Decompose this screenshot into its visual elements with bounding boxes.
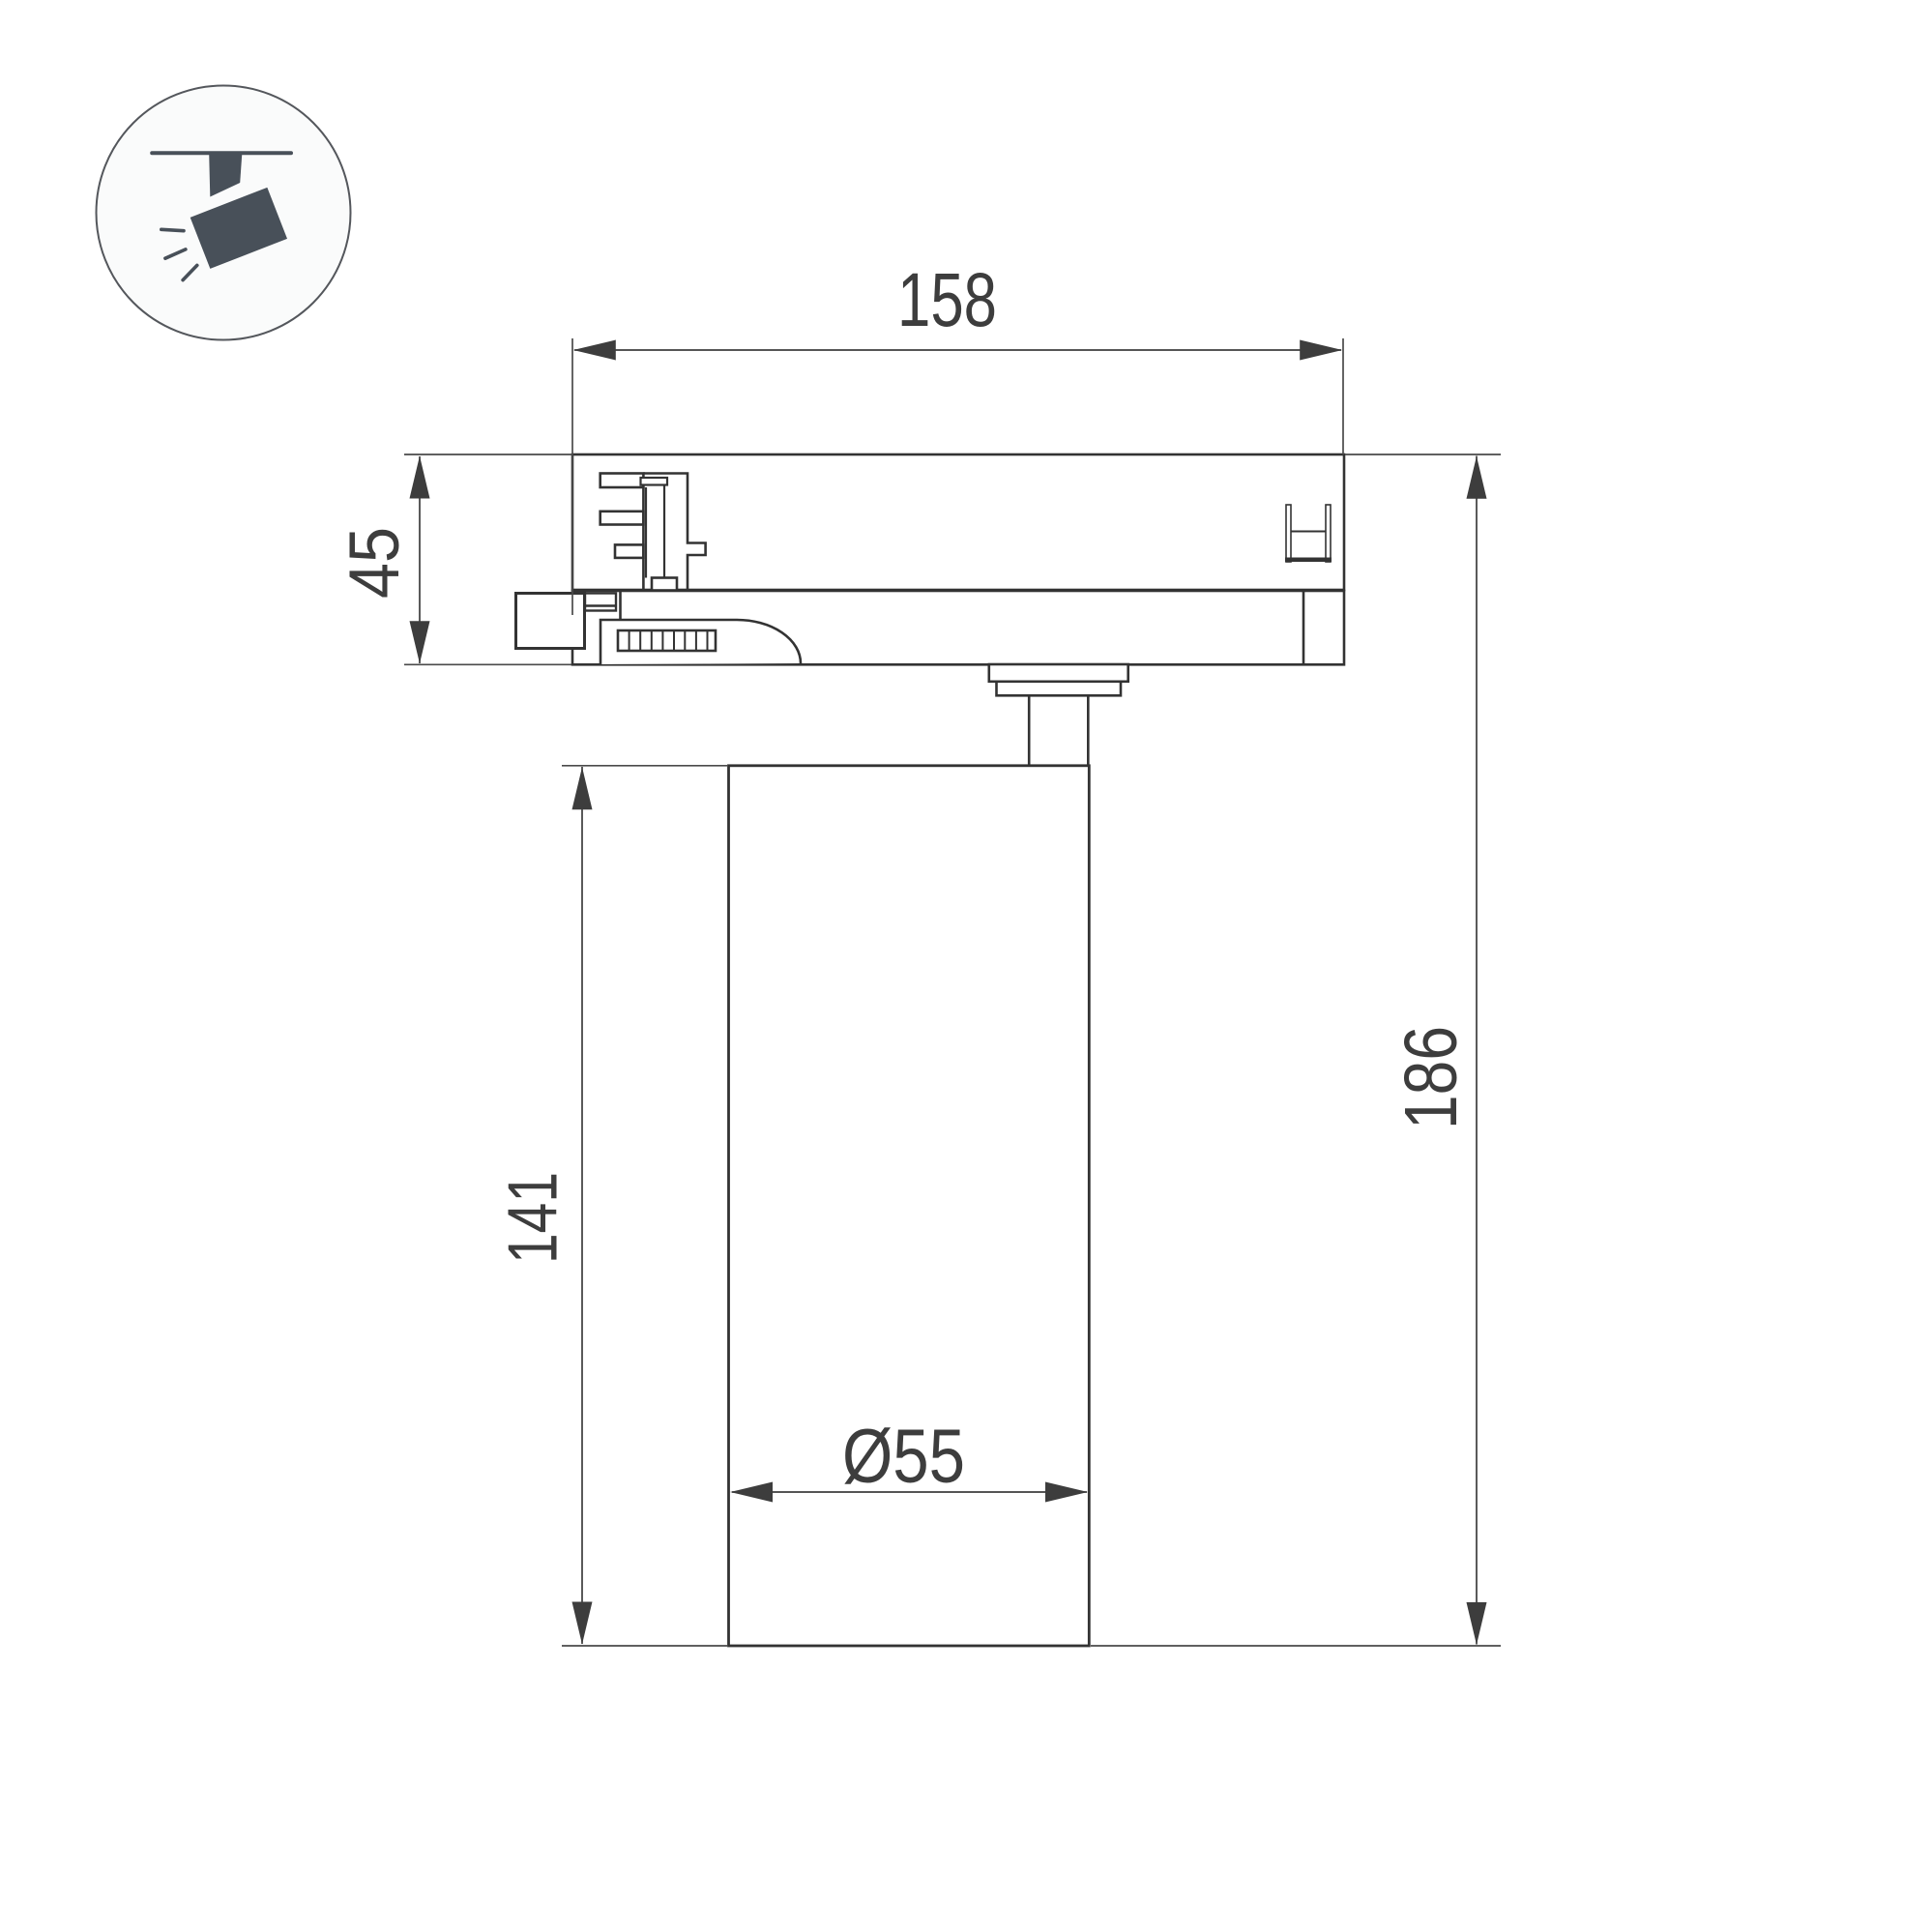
svg-text:141: 141 bbox=[495, 1172, 572, 1264]
svg-text:186: 186 bbox=[1390, 1026, 1473, 1129]
svg-text:158: 158 bbox=[897, 256, 997, 342]
svg-text:45: 45 bbox=[336, 527, 414, 599]
svg-text:Ø55: Ø55 bbox=[842, 1413, 965, 1499]
